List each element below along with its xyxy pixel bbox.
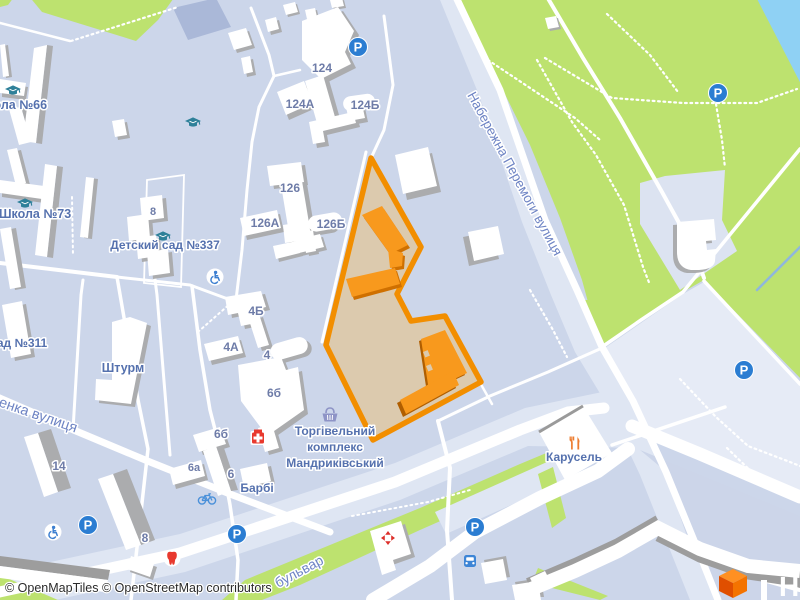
svg-text:4А: 4А [223,340,239,354]
svg-text:Школа №73: Школа №73 [0,207,71,221]
svg-text:124Б: 124Б [351,98,380,112]
svg-text:Барбі: Барбі [240,481,273,495]
svg-text:6б: 6б [214,427,228,441]
svg-text:4Б: 4Б [248,304,264,318]
svg-text:8: 8 [142,531,149,545]
svg-text:комплекс: комплекс [307,440,363,454]
svg-text:6б: 6б [267,386,281,400]
svg-text:Штурм: Штурм [102,361,145,375]
svg-text:126А: 126А [251,216,280,230]
svg-text:сад №311: сад №311 [0,336,48,350]
svg-text:124А: 124А [286,97,315,111]
svg-text:© OpenMapTiles © OpenStreetMap: © OpenMapTiles © OpenStreetMap contribut… [5,581,272,595]
svg-text:Мандриківський: Мандриківський [286,456,384,470]
svg-text:14: 14 [52,459,66,473]
svg-text:школа №66: школа №66 [0,98,47,112]
svg-text:4: 4 [264,348,271,362]
svg-text:124: 124 [312,61,332,75]
svg-text:Карусель: Карусель [546,450,602,464]
svg-text:126Б: 126Б [317,217,346,231]
svg-text:8: 8 [150,206,156,218]
svg-text:Н: Н [779,571,799,600]
svg-text:Торгівельний: Торгівельний [295,424,375,438]
svg-text:Детский сад №337: Детский сад №337 [110,238,220,252]
svg-text:6: 6 [228,467,235,481]
svg-text:126: 126 [280,181,300,195]
svg-text:6а: 6а [188,462,201,474]
